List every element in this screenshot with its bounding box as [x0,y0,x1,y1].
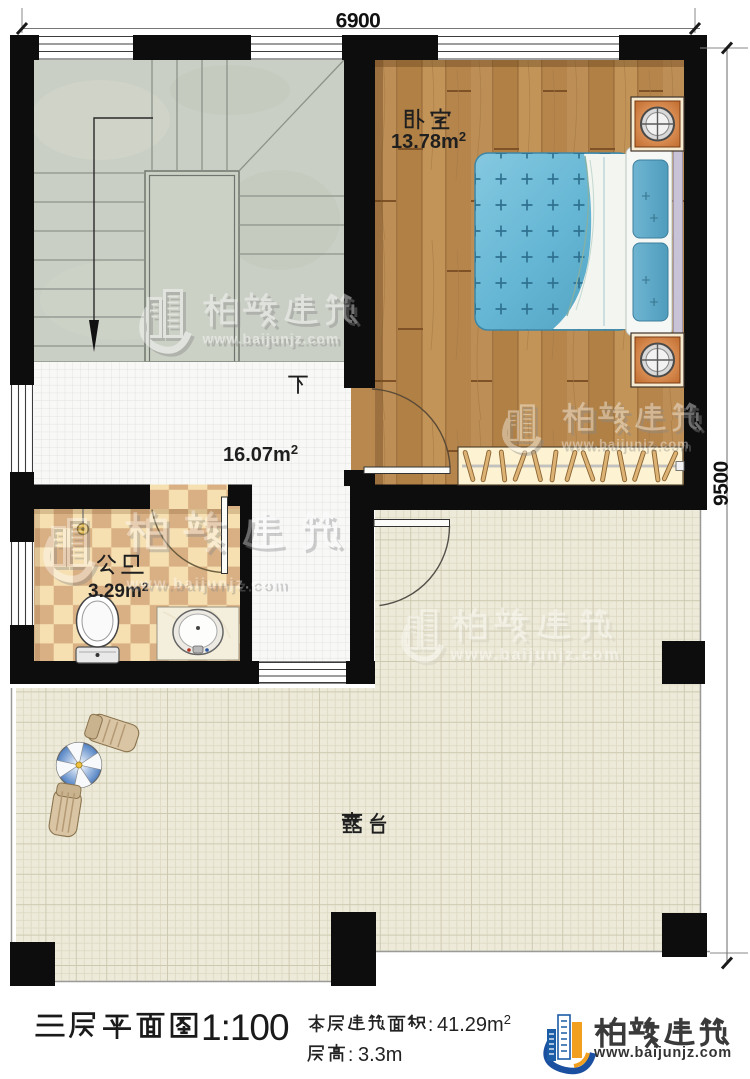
svg-text:www.baijunjz.com: www.baijunjz.com [561,437,690,452]
svg-text:13.78m2: 13.78m2 [391,129,466,153]
svg-text::: : [348,1045,353,1066]
svg-text:16.07m2: 16.07m2 [223,442,298,466]
svg-text:1:100: 1:100 [201,1007,289,1048]
svg-text::: : [428,1015,433,1036]
svg-text:3.3m: 3.3m [358,1044,402,1066]
svg-text:9500: 9500 [710,461,733,506]
svg-text:www.baijunjz.com: www.baijunjz.com [126,576,288,593]
svg-text:www.baijunjz.com: www.baijunjz.com [450,647,621,664]
svg-text:www.baijunjz.com: www.baijunjz.com [202,331,340,347]
svg-text:www.baijunjz.com: www.baijunjz.com [593,1045,732,1061]
svg-text:6900: 6900 [336,10,381,33]
svg-text:41.29m2: 41.29m2 [437,1012,511,1036]
